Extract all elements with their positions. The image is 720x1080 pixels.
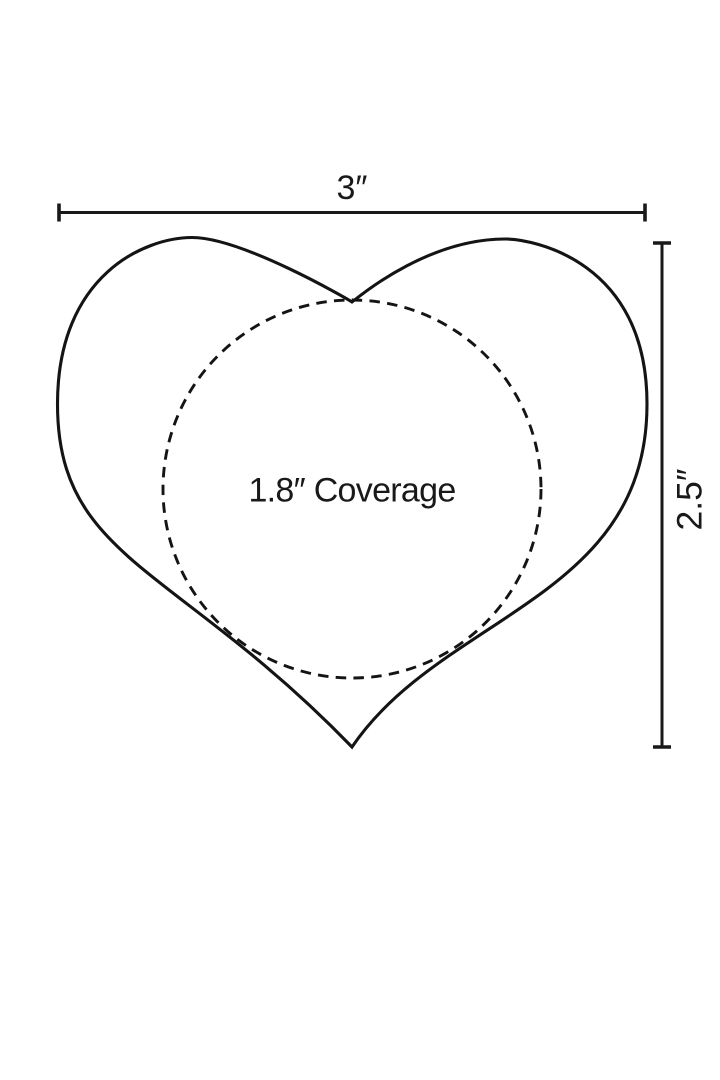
svg-text:3″: 3″ <box>337 169 368 207</box>
svg-text:2.5″: 2.5″ <box>670 469 710 531</box>
svg-text:1.8″ Coverage: 1.8″ Coverage <box>248 472 455 510</box>
